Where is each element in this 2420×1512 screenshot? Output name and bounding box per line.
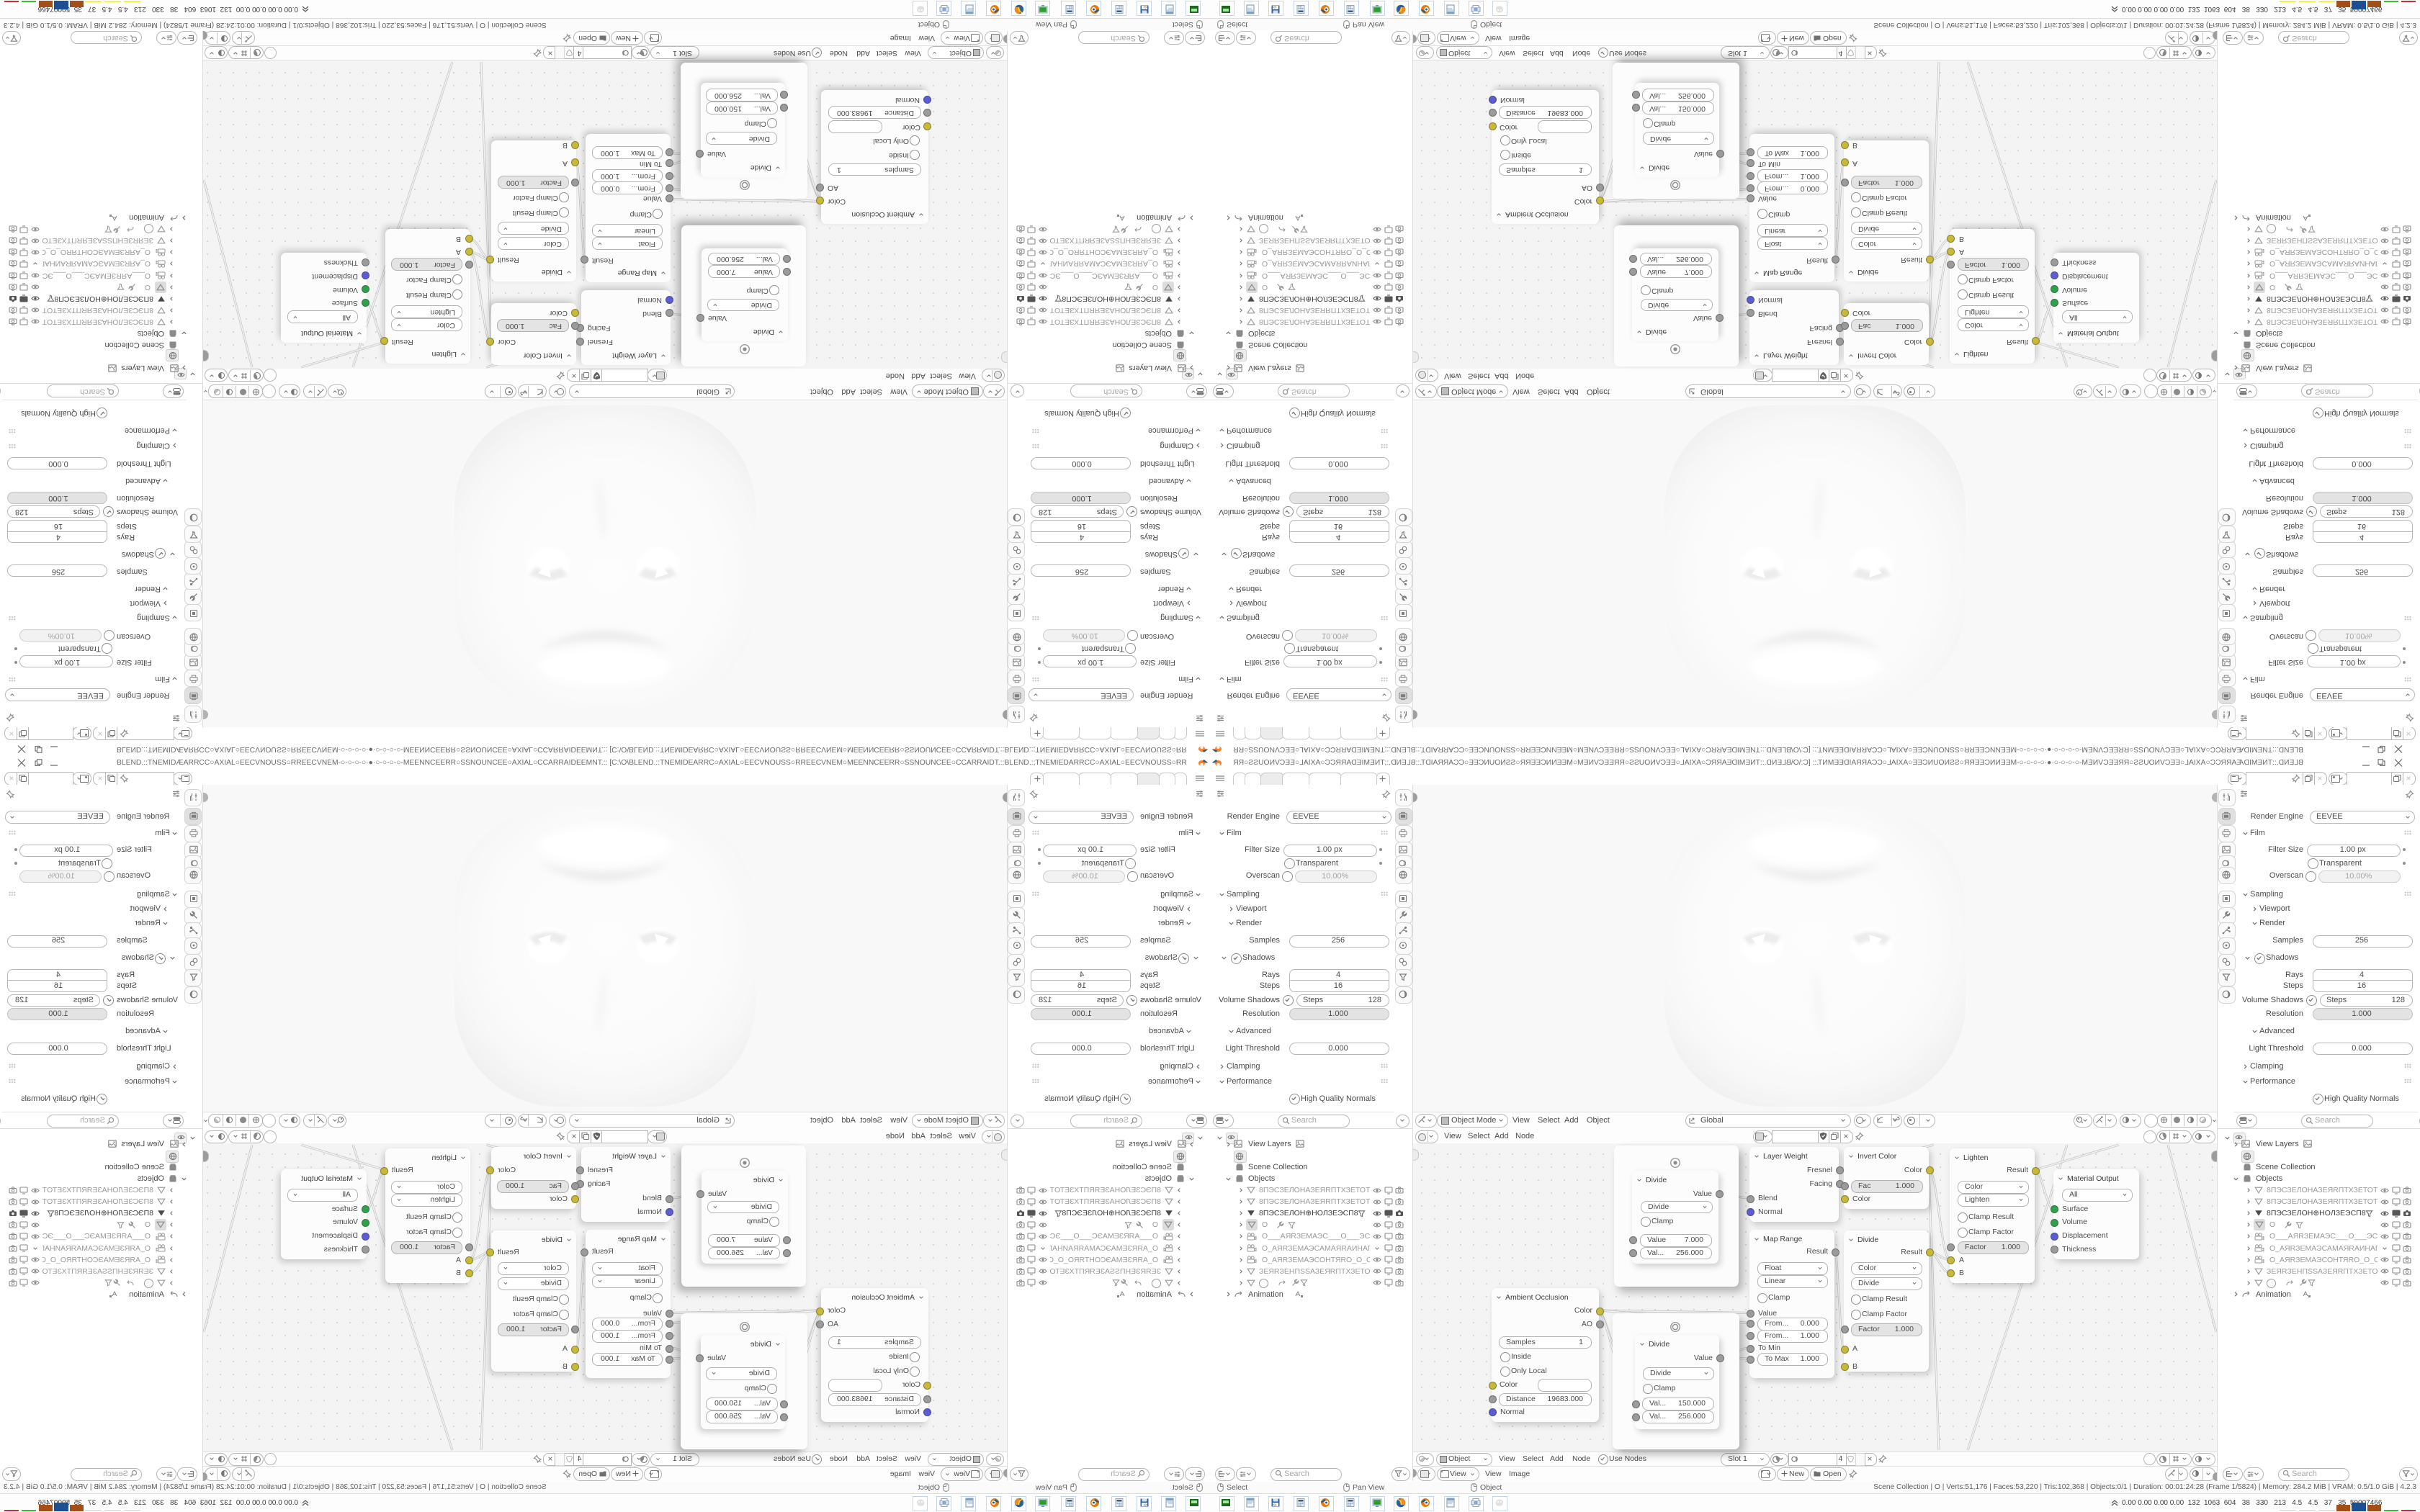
- svg-text:64: 64: [1143, 6, 1147, 9]
- svg-text:64: 64: [1143, 1503, 1147, 1506]
- svg-text:64: 64: [1273, 1503, 1277, 1506]
- svg-text:64: 64: [1273, 6, 1277, 9]
